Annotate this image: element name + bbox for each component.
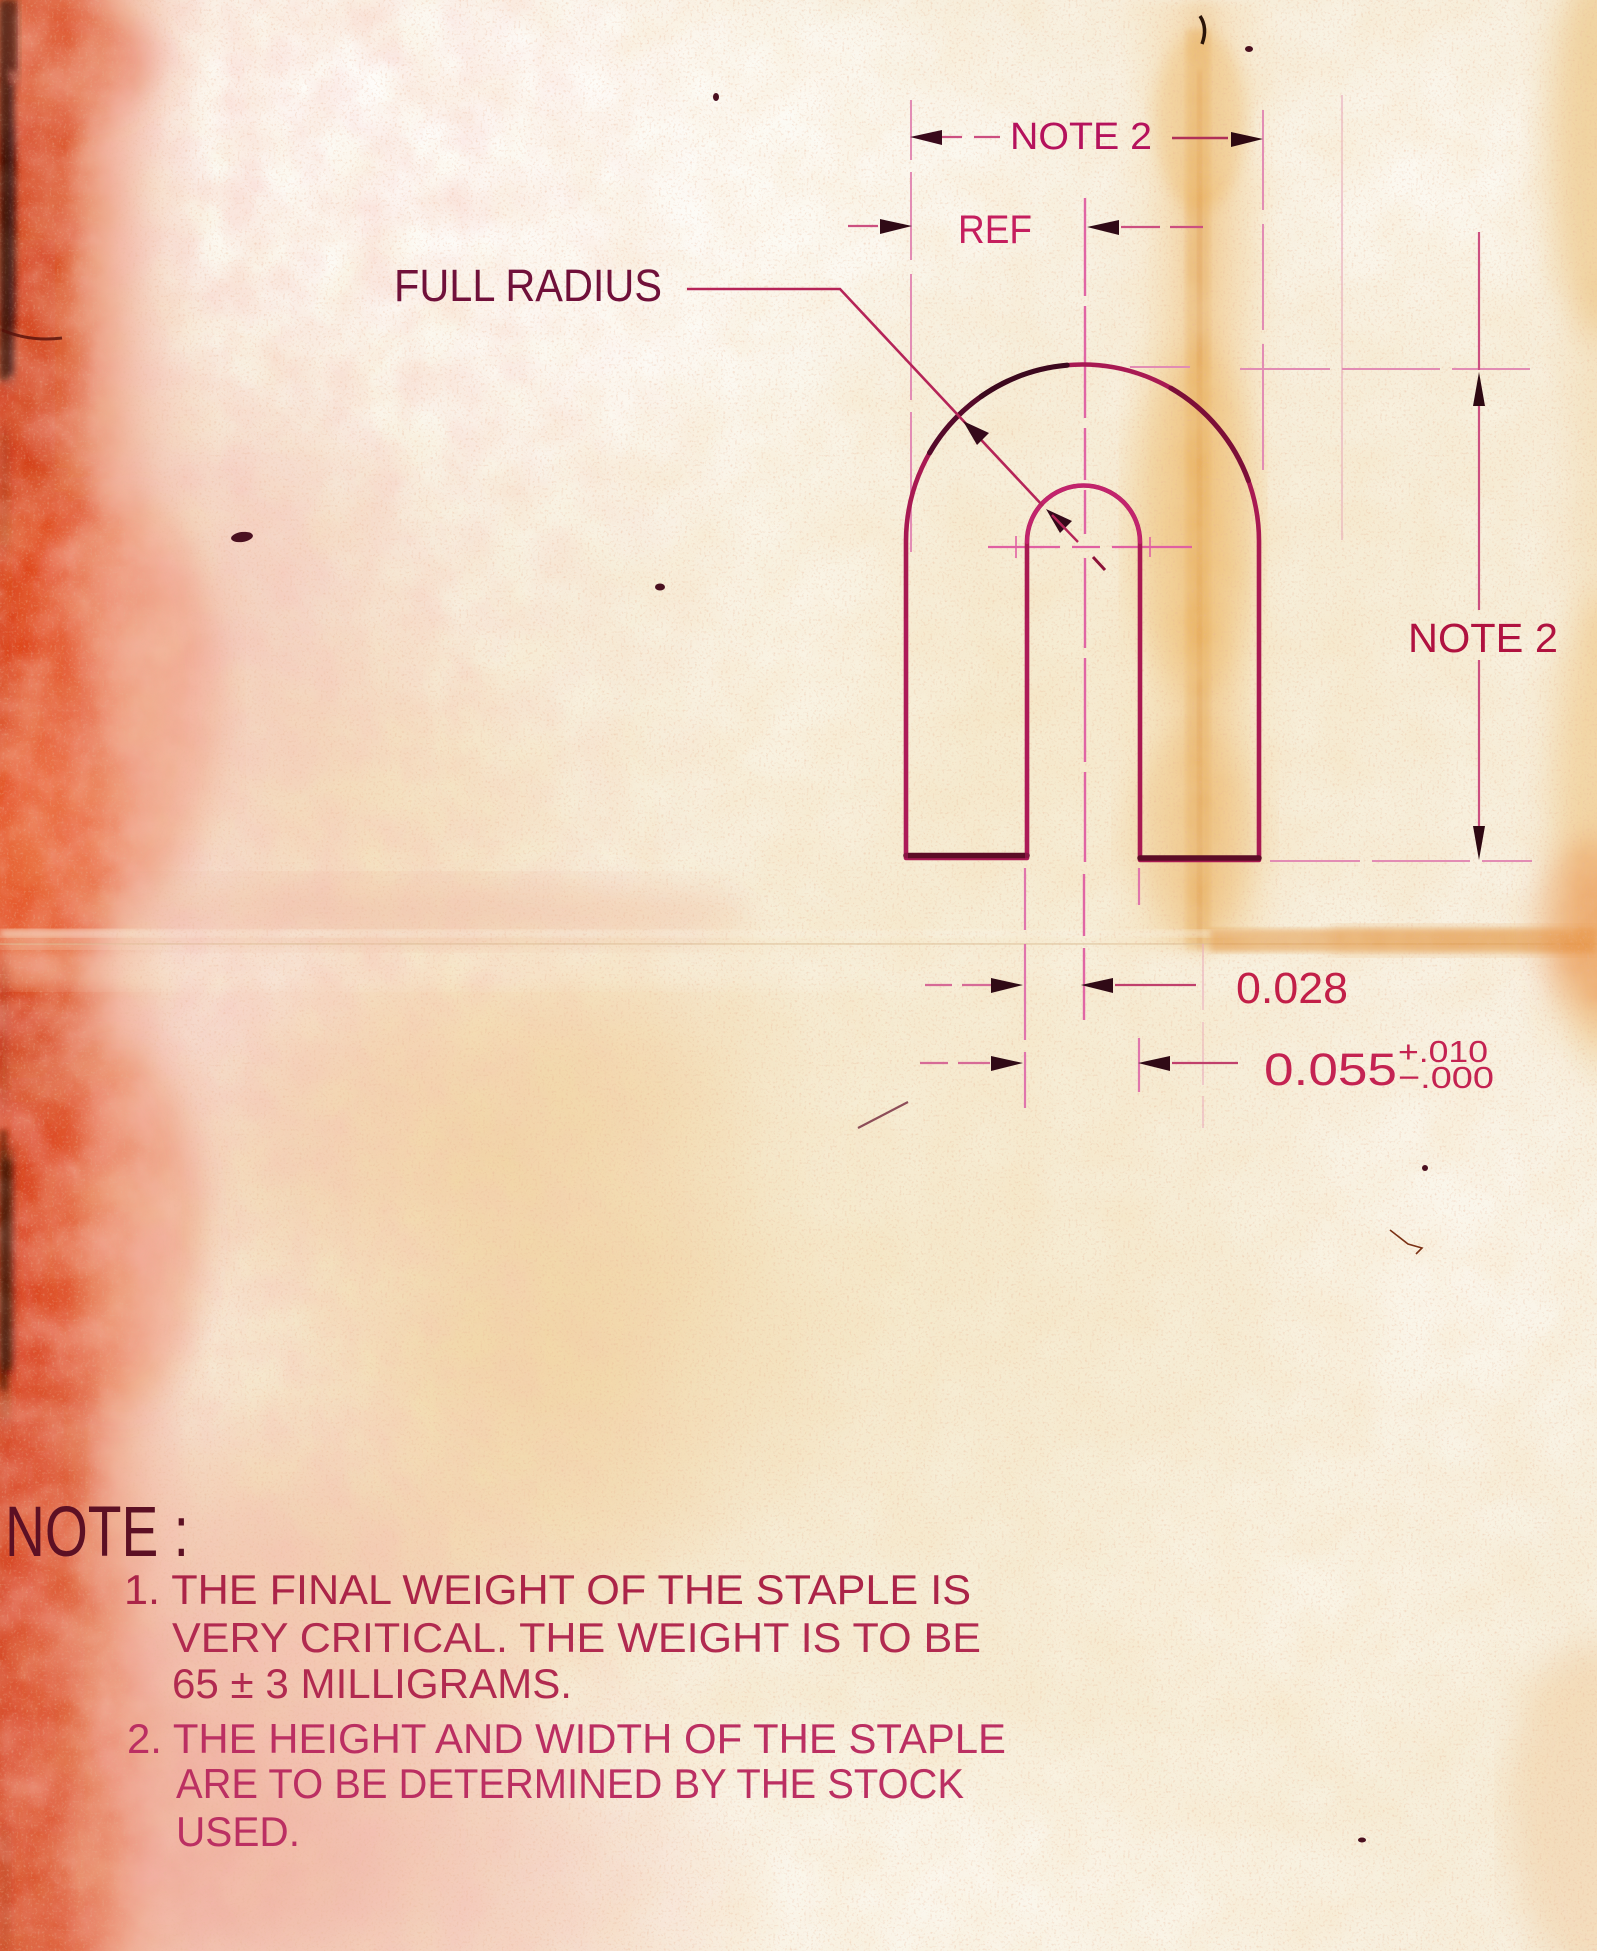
svg-text:USED.: USED. (176, 1808, 300, 1855)
svg-text:NOTE 2: NOTE 2 (1010, 116, 1152, 158)
svg-text:0.028: 0.028 (1236, 964, 1348, 1013)
svg-text:FULL RADIUS: FULL RADIUS (394, 260, 662, 311)
svg-text:ARE TO BE DETERMINED BY THE ST: ARE TO BE DETERMINED BY THE STOCK (176, 1760, 964, 1807)
svg-text:−.000: −.000 (1398, 1060, 1494, 1095)
svg-text:65 ± 3 MILLIGRAMS.: 65 ± 3 MILLIGRAMS. (172, 1660, 572, 1707)
svg-text:NOTE :: NOTE : (5, 1493, 189, 1572)
svg-text:REF: REF (958, 208, 1032, 252)
svg-text:1. THE FINAL WEIGHT OF THE STA: 1. THE FINAL WEIGHT OF THE STAPLE IS (124, 1566, 971, 1613)
svg-text:NOTE 2: NOTE 2 (1408, 615, 1558, 661)
svg-text:VERY CRITICAL. THE WEIGHT IS T: VERY CRITICAL. THE WEIGHT IS TO BE (172, 1614, 981, 1661)
svg-text:0.055: 0.055 (1264, 1044, 1397, 1095)
svg-text:2. THE HEIGHT AND WIDTH OF THE: 2. THE HEIGHT AND WIDTH OF THE STAPLE (127, 1715, 1006, 1762)
